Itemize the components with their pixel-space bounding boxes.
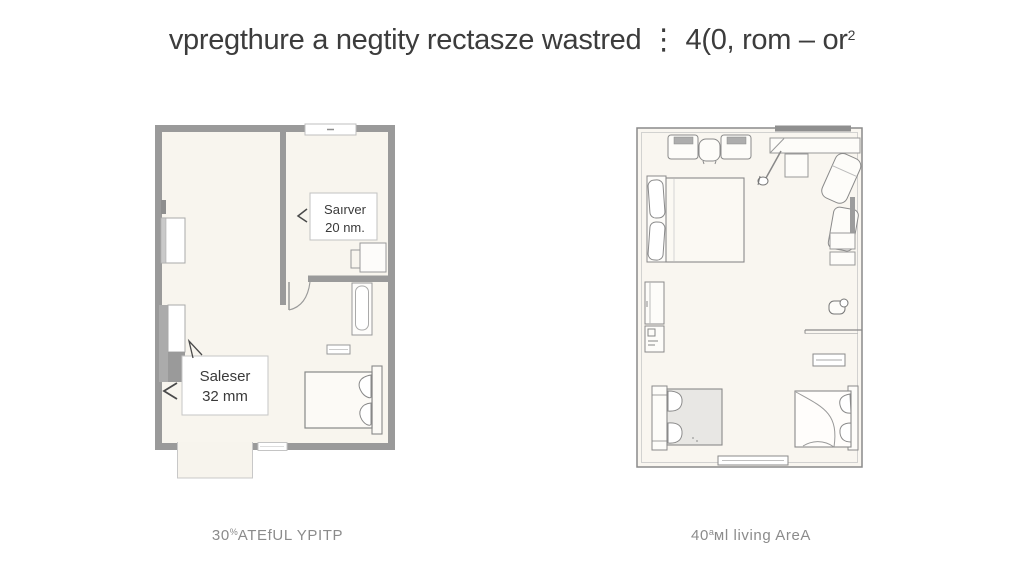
left-floorplan: [155, 120, 400, 492]
shelf-icon: [813, 354, 845, 366]
side-table-icon: [785, 154, 808, 177]
bed-icon: [795, 386, 858, 450]
page-title-superscript: 2: [848, 27, 856, 43]
left-floorplan-drawing: [155, 120, 400, 492]
counter-icon: [770, 138, 860, 153]
page-title: vpregthure a negtity rectasze wastred ⋮ …: [0, 22, 1024, 57]
bathtub-icon: [352, 283, 372, 335]
armchair-icon: [668, 135, 698, 159]
room-label-lower-line2: 32 mm: [186, 387, 264, 407]
desk-icon: [645, 326, 664, 352]
cabinet-lower: [159, 305, 185, 382]
left-caption-text: ATEfUL YPITP: [238, 527, 343, 544]
bed-icon: [305, 366, 382, 434]
round-table-icon: [699, 139, 720, 164]
page-title-text: vpregthure a negtity rectasze wastred ⋮ …: [169, 24, 848, 56]
window-bottom-icon: [718, 456, 788, 465]
window-top: [305, 124, 356, 135]
right-floorplan-drawing: [633, 123, 869, 473]
right-floorplan: [633, 123, 869, 473]
left-caption-superscript: %: [230, 527, 238, 537]
room-label-upper: Saırver 20 nm.: [316, 201, 374, 236]
page: vpregthure a negtity rectasze wastred ⋮ …: [0, 0, 1024, 585]
bed-icon: [647, 176, 744, 262]
room-label-lower: Saleser 32 mm: [186, 367, 264, 408]
room-label-upper-line2: 20 nm.: [316, 219, 374, 237]
wardrobe-icon: [645, 282, 664, 324]
shelf-icon: [327, 345, 350, 354]
room-label-lower-line1: Saleser: [186, 367, 264, 387]
window-top-icon: [775, 126, 851, 132]
window-bottom: [258, 443, 287, 451]
bed-icon: [652, 386, 722, 450]
right-caption-number: 40: [691, 527, 709, 544]
left-plan-caption: 30%ATEfUL YPITP: [155, 527, 400, 544]
cabinet-icon: [830, 233, 855, 265]
entry-extension: [178, 442, 253, 478]
left-caption-number: 30: [212, 527, 230, 544]
right-caption-text: ᴍl living AreA: [714, 527, 811, 544]
room-label-upper-line1: Saırver: [316, 201, 374, 219]
armchair-icon: [721, 135, 751, 159]
right-plan-caption: 40aᴍl living AreA: [633, 527, 869, 544]
